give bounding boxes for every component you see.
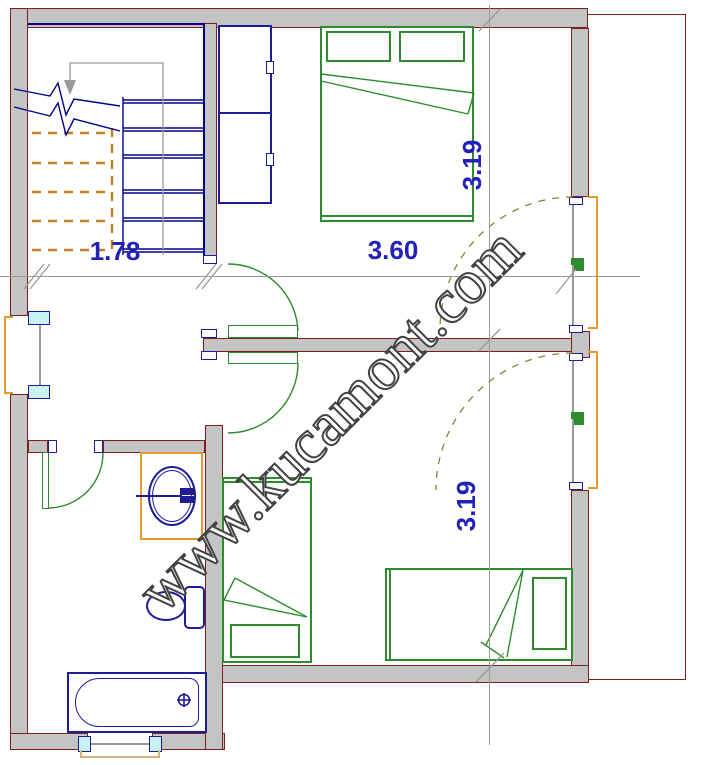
bath-window-frame-outer (80, 756, 160, 758)
left-window-sill-top (28, 311, 50, 325)
bedroom1-door-leaf (228, 325, 298, 338)
single-bed-horizontal-footline (389, 570, 391, 659)
wall-stair-bedroom1 (203, 23, 217, 263)
double-bed-pillow-left (326, 31, 391, 62)
balcony-door2-frame-outer (596, 353, 598, 489)
balcony-door2-handle (571, 412, 584, 419)
left-window-frame-bottom (4, 392, 13, 394)
balcony-outline-right (685, 14, 686, 680)
bath-window-frame-left (80, 750, 82, 758)
dimension-bedroom2-depth: 3.19 (452, 466, 480, 546)
wardrobe-handle-bottom (266, 153, 274, 166)
dimension-bedroom1-width: 3.60 (353, 236, 433, 264)
wardrobe-divider (218, 112, 272, 114)
wardrobe-handle-top (266, 61, 274, 74)
wall-left-upper (10, 8, 28, 316)
wall-right-bedroom1 (571, 28, 589, 197)
wardrobe (218, 25, 272, 204)
staircase-walk-line (64, 63, 163, 255)
bath-window-glass (91, 743, 149, 745)
single-bed-horizontal-pillow (532, 577, 567, 650)
balcony-door1-frame-top (588, 196, 598, 198)
stair-room-right-edge (203, 23, 205, 263)
door-jamb-midwall-bottom (201, 351, 217, 360)
dimension-hall-width: 1.78 (75, 237, 155, 265)
left-window-sill-bottom (28, 385, 50, 399)
balcony-outline-bottom (589, 679, 686, 680)
balcony-door2-jamb-top (569, 353, 583, 361)
balcony-door1-frame-outer (596, 197, 598, 329)
bathtub-basin (75, 678, 199, 727)
door-jamb-bath-left (48, 440, 57, 453)
balcony-door1-handle-grip (574, 265, 584, 271)
balcony-door1-frame-bottom (588, 327, 598, 329)
balcony-door1-jamb-bottom (569, 325, 583, 333)
staircase-break-line (14, 83, 120, 135)
bath-window-sill-right (149, 736, 162, 752)
balcony-outline-top (588, 14, 686, 15)
sink-faucet-bottom (180, 496, 195, 503)
balcony-door2-jamb-bottom (569, 482, 583, 490)
wall-left-lower (10, 394, 28, 750)
dimension-line-vertical (489, 5, 490, 745)
balcony-door2-handle-grip (574, 419, 584, 425)
door-jamb-midwall-top (201, 329, 217, 338)
left-window-glass (39, 325, 41, 385)
double-bed-footline (322, 215, 472, 217)
door-jamb-bath-right (94, 440, 103, 453)
dimension-line-horizontal (0, 276, 640, 277)
bathroom-door-leaf (42, 452, 49, 509)
wall-bath-bottom-left (10, 733, 88, 750)
staircase-treads (123, 97, 203, 255)
wall-right-bedroom2 (571, 490, 589, 683)
bath-window-frame-right (158, 750, 160, 758)
left-window-frame-outer (4, 316, 6, 394)
sink-faucet-line (136, 495, 182, 497)
wall-bottom-bedroom2 (205, 665, 589, 683)
door-jamb-stair-stub (203, 255, 217, 264)
single-bed-vertical-pillow (230, 624, 300, 658)
balcony-door1-handle (571, 258, 584, 265)
balcony-door2-frame-top (588, 351, 598, 353)
wall-top (10, 8, 588, 28)
left-window-frame-top (4, 316, 13, 318)
bedroom2-door-leaf (228, 352, 298, 364)
double-bed-pillow-right (399, 31, 465, 62)
sink-faucet-top (180, 488, 195, 495)
balcony-door2-frame-bottom (588, 487, 598, 489)
dimension-bedroom1-depth: 3.19 (458, 125, 486, 205)
stair-room-top-edge (28, 23, 203, 25)
